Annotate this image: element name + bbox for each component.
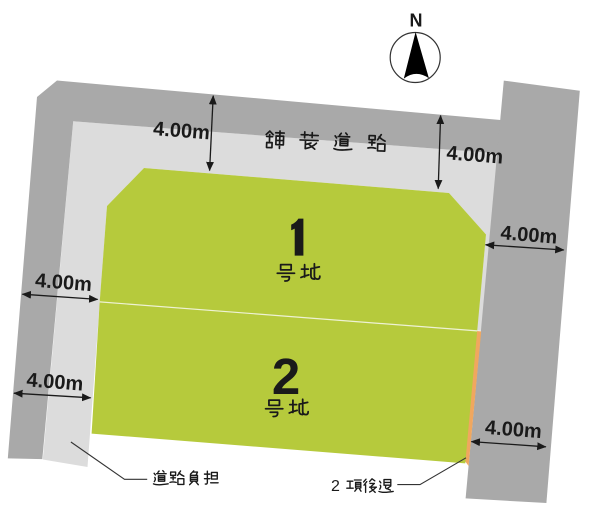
svg-text:4.00m: 4.00m (26, 369, 84, 395)
svg-text:4.00m: 4.00m (34, 270, 92, 296)
svg-text:4.00m: 4.00m (446, 142, 504, 168)
svg-text:2: 2 (331, 478, 340, 495)
svg-text:4.00m: 4.00m (484, 417, 542, 443)
svg-text:N: N (410, 11, 423, 31)
svg-text:2: 2 (272, 348, 300, 405)
svg-text:4.00m: 4.00m (500, 222, 558, 248)
svg-text:4.00m: 4.00m (152, 118, 210, 144)
